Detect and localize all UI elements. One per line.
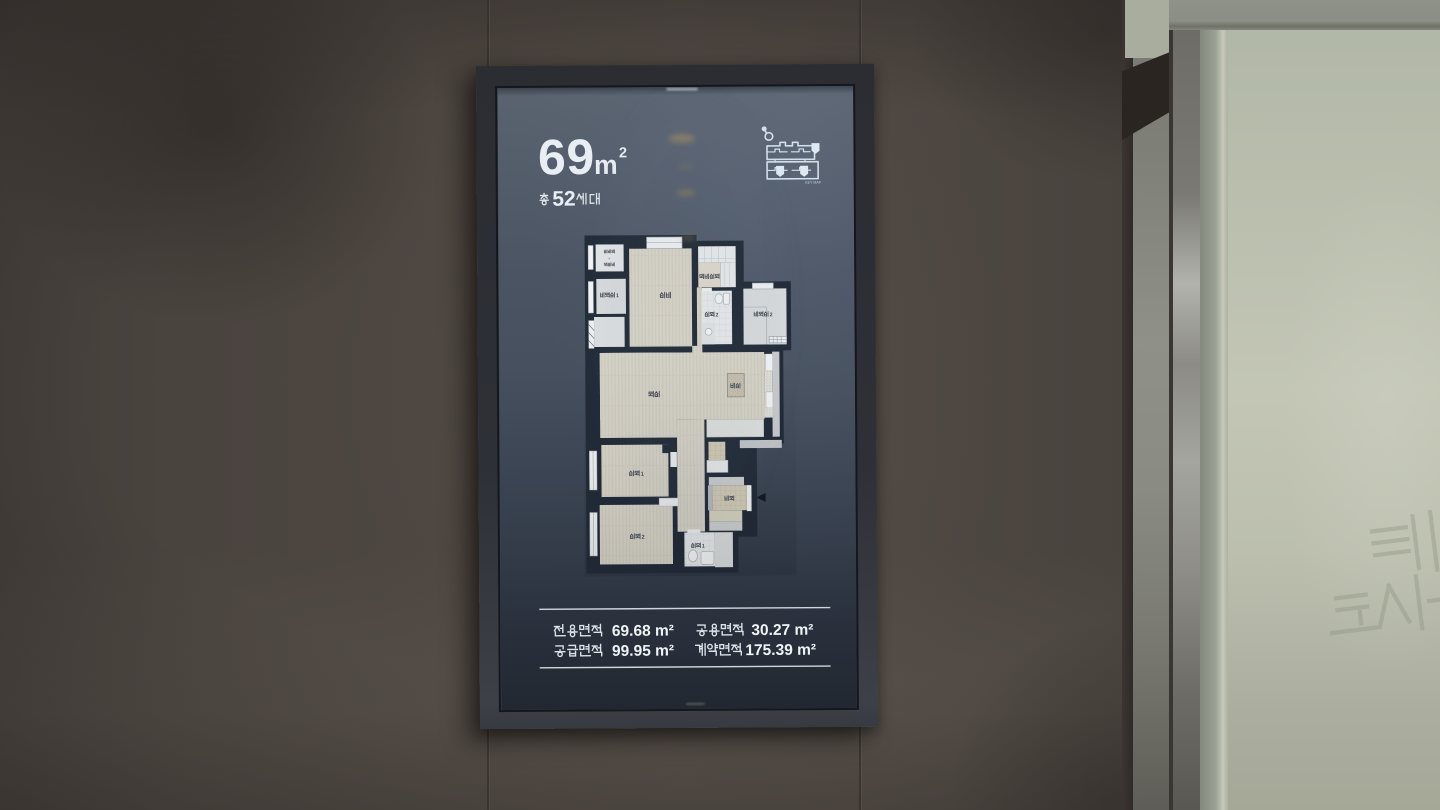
svg-text:30.27 m²: 30.27 m² xyxy=(751,622,813,639)
svg-text:175.39 m²: 175.39 m² xyxy=(745,642,816,659)
svg-text:69: 69 xyxy=(538,129,595,185)
svg-text:m: m xyxy=(594,150,618,180)
svg-text:1: 1 xyxy=(702,544,705,550)
svg-text:99.95 m²: 99.95 m² xyxy=(612,643,674,660)
svg-text:69.68 m²: 69.68 m² xyxy=(612,623,674,640)
svg-text:52: 52 xyxy=(552,188,575,211)
svg-text:KEY MAP: KEY MAP xyxy=(805,181,822,185)
svg-text:2: 2 xyxy=(642,535,645,541)
